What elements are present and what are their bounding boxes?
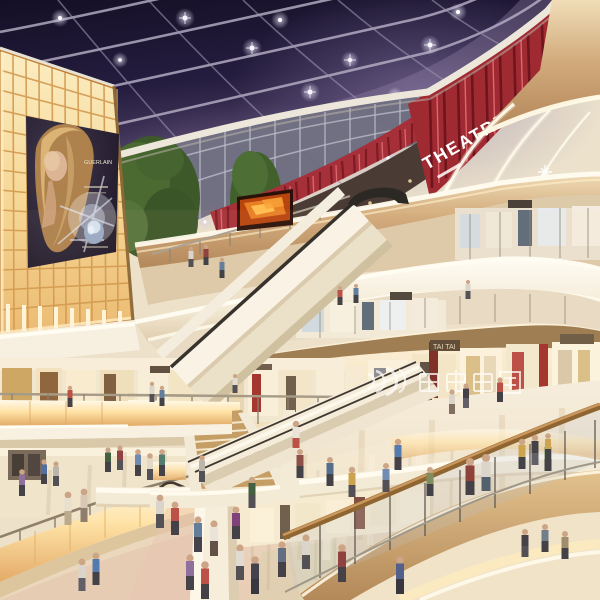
svg-text:GUERLAIN: GUERLAIN [84,160,112,166]
